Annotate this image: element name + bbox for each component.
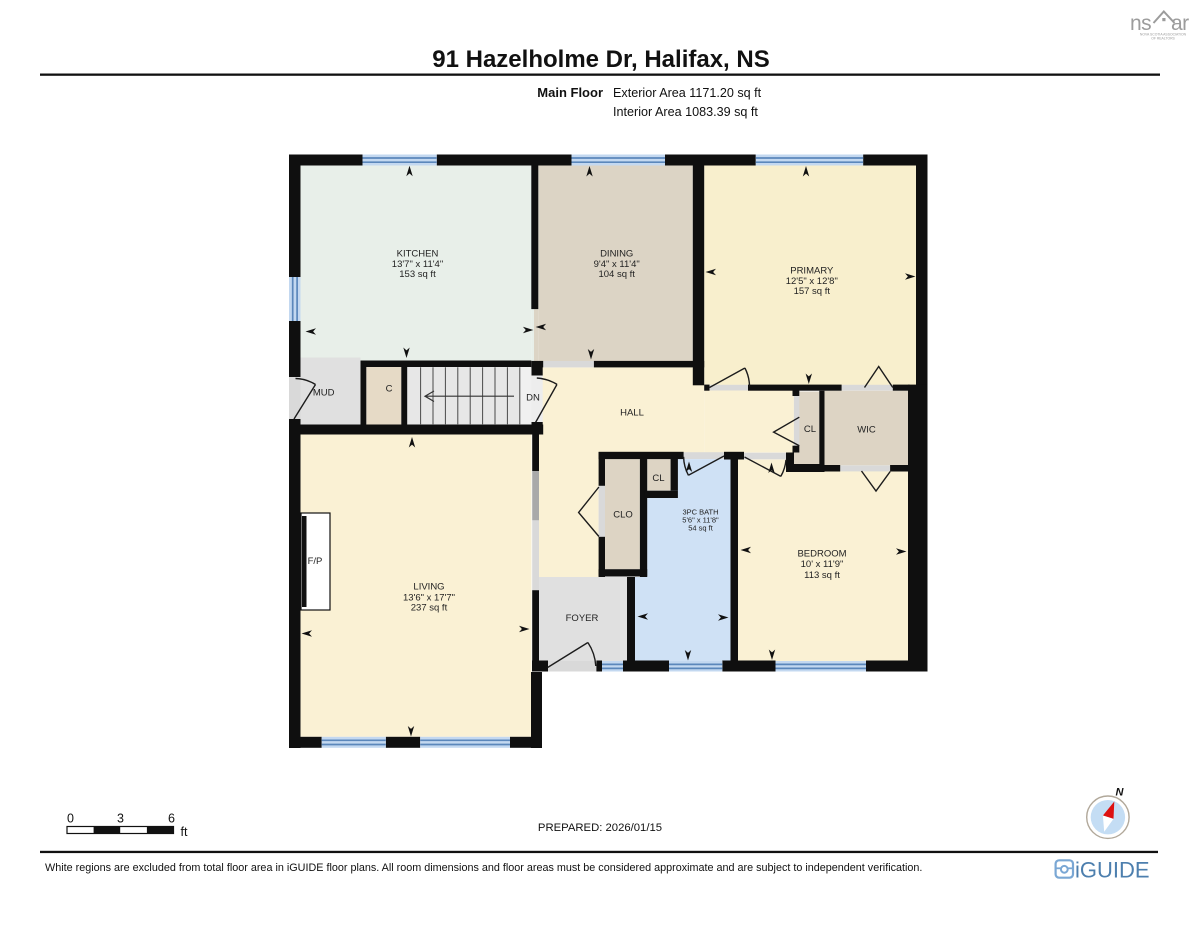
svg-text:FOYER: FOYER <box>566 613 599 624</box>
svg-text:CL: CL <box>804 424 816 435</box>
svg-text:3: 3 <box>117 812 124 826</box>
svg-text:CL: CL <box>652 473 664 484</box>
svg-text:Exterior Area 1171.20 sq ft: Exterior Area 1171.20 sq ft <box>613 86 762 100</box>
svg-text:CLO: CLO <box>613 510 633 521</box>
svg-text:N: N <box>1116 787 1125 799</box>
svg-text:BEDROOM: BEDROOM <box>797 549 846 560</box>
svg-text:113 sq ft: 113 sq ft <box>804 570 840 581</box>
svg-text:Interior Area 1083.39 sq ft: Interior Area 1083.39 sq ft <box>613 105 758 119</box>
svg-text:LIVING: LIVING <box>413 582 444 593</box>
svg-text:C: C <box>386 384 393 395</box>
svg-text:54 sq ft: 54 sq ft <box>688 524 714 533</box>
svg-text:F/P: F/P <box>308 556 323 567</box>
svg-text:237 sq ft: 237 sq ft <box>411 603 448 614</box>
svg-text:DN: DN <box>526 393 540 404</box>
svg-text:MUD: MUD <box>313 388 335 399</box>
svg-text:91 Hazelholme Dr, Halifax, NS: 91 Hazelholme Dr, Halifax, NS <box>432 46 769 73</box>
svg-text:Main Floor: Main Floor <box>537 85 603 100</box>
svg-text:HALL: HALL <box>620 408 644 419</box>
svg-text:ft: ft <box>181 825 188 839</box>
svg-text:104 sq ft: 104 sq ft <box>598 269 635 280</box>
svg-text:6: 6 <box>168 812 175 826</box>
svg-text:OF REALTORS: OF REALTORS <box>1151 37 1175 41</box>
svg-text:153 sq ft: 153 sq ft <box>399 269 436 280</box>
svg-text:WIC: WIC <box>857 425 876 436</box>
svg-text:PREPARED: 2026/01/15: PREPARED: 2026/01/15 <box>538 822 662 834</box>
svg-text:0: 0 <box>67 812 74 826</box>
svg-text:157 sq ft: 157 sq ft <box>794 286 831 297</box>
svg-text:iGUIDE: iGUIDE <box>1075 858 1150 883</box>
svg-text:White regions are excluded fro: White regions are excluded from total fl… <box>45 862 922 874</box>
svg-text:10' x 11'9": 10' x 11'9" <box>801 559 844 570</box>
